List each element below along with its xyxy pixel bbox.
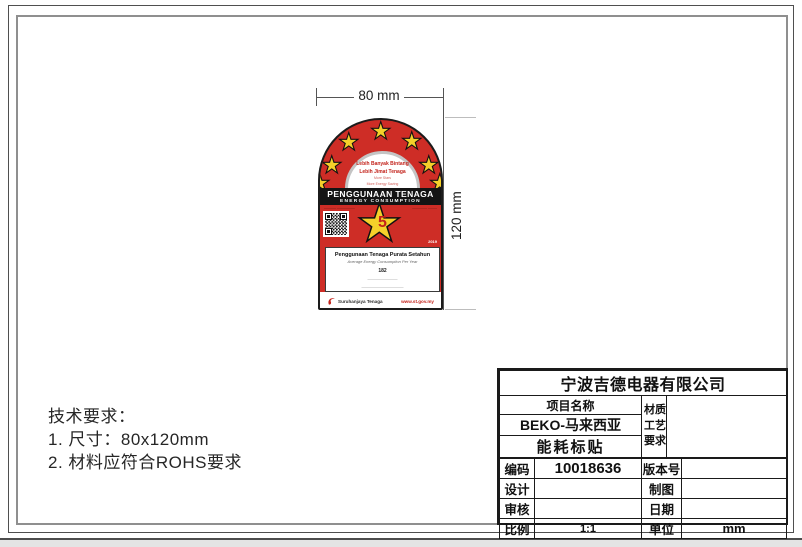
height-ext-line-top [445, 117, 476, 118]
star-icon: ★ [321, 154, 343, 178]
slogan-line-1: Lebih Banyak Bintang [348, 161, 417, 169]
unit-label: 单位 [642, 519, 682, 539]
table-row: 比例 1:1 单位 mm [500, 519, 787, 539]
drafting-value [682, 479, 787, 499]
review-label: 审核 [500, 499, 535, 519]
consumption-title-my: Penggunaan Tenaga Purata Setahun [326, 252, 439, 259]
drafting-label: 制图 [642, 479, 682, 499]
table-row: 编码 10018636 版本号 [500, 459, 787, 479]
consumption-value: 182 [326, 268, 439, 274]
table-row: 审核 日期 [500, 499, 787, 519]
width-dimension-label: 80 mm [344, 88, 414, 103]
page-edge-strip [0, 538, 802, 547]
label-brand-text: Suruhanjaya Tenaga [338, 299, 383, 304]
code-value: 10018636 [535, 459, 642, 479]
tech-requirements-title: 技术要求： [48, 405, 242, 428]
rating-value: 5 [320, 214, 443, 232]
title-block-bottom-table: 编码 10018636 版本号 设计 制图 审核 日期 比例 1:1 单位 [499, 458, 787, 539]
material-process-value [667, 396, 787, 458]
design-label: 设计 [500, 479, 535, 499]
project-name: BEKO-马来西亚 [500, 415, 642, 436]
label-footer: Suruhanjaya Tenaga www.st.gov.my [320, 292, 441, 310]
star-icon: ★ [401, 130, 423, 154]
version-label: 版本号 [642, 459, 682, 479]
panel-micro-line: —————————— [326, 277, 439, 282]
consumption-title-en: Average Energy Consumption Per Year [326, 259, 439, 265]
review-value [535, 499, 642, 519]
project-name-header: 项目名称 [500, 396, 642, 415]
scale-label: 比例 [500, 519, 535, 539]
design-value [535, 479, 642, 499]
tech-requirement-item: 1. 尺寸：80x120mm [48, 428, 242, 451]
panel-micro-line: —————————————— [326, 285, 439, 290]
label-year: 2019 [428, 239, 437, 244]
title-block: 宁波吉德电器有限公司 项目名称 材质 工艺 要求 BEKO-马来西亚 能耗标贴 … [497, 368, 788, 525]
material-line: 工艺 [644, 419, 666, 435]
width-dim-tick-left [316, 88, 317, 106]
company-name: 宁波吉德电器有限公司 [500, 371, 787, 396]
date-label: 日期 [642, 499, 682, 519]
label-slogan-circle: Lebih Banyak Bintang Lebih Jimat Tenaga … [345, 151, 420, 188]
date-value [682, 499, 787, 519]
energy-label-artwork: ★ ★ ★ ★ ★ ★ ★ Lebih Banyak Bintang Lebih… [318, 118, 443, 310]
material-line: 材质 [644, 403, 666, 419]
height-dimension-label: 120 mm [446, 183, 468, 249]
code-label: 编码 [500, 459, 535, 479]
star-icon: ★ [338, 131, 360, 155]
panel-micro-line: ——————————— [326, 308, 439, 310]
project-type: 能耗标贴 [500, 436, 642, 458]
material-process-label: 材质 工艺 要求 [642, 396, 667, 458]
scale-value: 1:1 [535, 519, 642, 539]
table-row: 设计 制图 [500, 479, 787, 499]
label-website-url: www.st.gov.my [401, 299, 434, 304]
width-dim-line-right [404, 97, 443, 98]
height-dim-line [443, 88, 444, 310]
star-icon: ★ [429, 172, 441, 188]
height-ext-line-bottom [445, 309, 476, 310]
unit-value: mm [682, 519, 787, 539]
tech-requirement-item: 2. 材料应符合ROHS要求 [48, 451, 242, 474]
width-dim-line-left [317, 97, 354, 98]
material-line: 要求 [644, 434, 666, 450]
slogan-line-2: Lebih Jimat Tenaga [348, 169, 417, 177]
title-block-top-table: 宁波吉德电器有限公司 项目名称 材质 工艺 要求 BEKO-马来西亚 能耗标贴 [499, 370, 787, 458]
version-value [682, 459, 787, 479]
label-consumption-panel: Penggunaan Tenaga Purata Setahun Average… [325, 247, 440, 292]
drawing-sheet: 80 mm 120 mm ★ ★ ★ ★ ★ ★ ★ Lebih Banyak … [0, 0, 802, 547]
tech-requirements: 技术要求： 1. 尺寸：80x120mm 2. 材料应符合ROHS要求 [48, 405, 242, 474]
slogan-line-4: More Energy Saving [348, 182, 417, 188]
label-micro-text-left: ———— —————— [324, 207, 355, 210]
label-micro-text-right: ————— ——— [412, 207, 437, 210]
suruhanjaya-tenaga-logo-icon [327, 297, 336, 306]
label-rating-section: ———— —————— ————— ——— ★ 5 2019 [320, 205, 441, 247]
star-icon: ★ [370, 120, 392, 144]
